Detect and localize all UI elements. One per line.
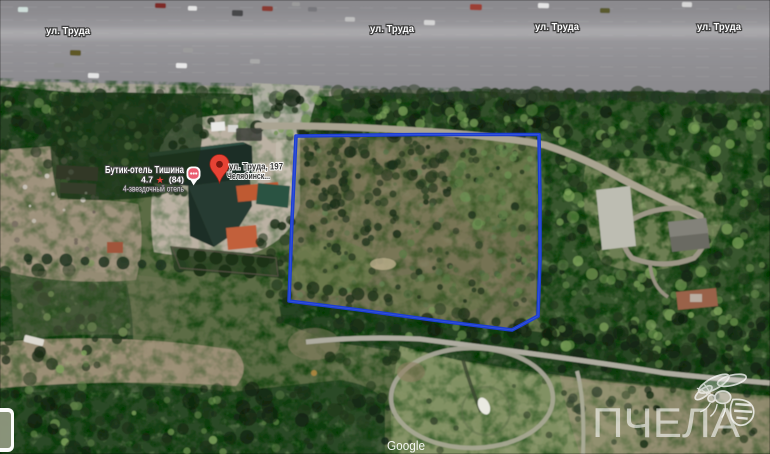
- svg-text:4-звездочный отель: 4-звездочный отель: [123, 184, 184, 194]
- svg-text:ул. Труда: ул. Труда: [535, 22, 579, 33]
- svg-text:Челябинск...: Челябинск...: [227, 171, 270, 181]
- svg-text:ул. Труда, 197: ул. Труда, 197: [229, 162, 283, 172]
- svg-text:ул. Труда: ул. Труда: [46, 26, 90, 37]
- svg-text:ул. Труда: ул. Труда: [370, 24, 414, 35]
- svg-text:ул. Труда: ул. Труда: [697, 22, 741, 33]
- svg-text:Google: Google: [387, 438, 425, 453]
- svg-text:ПЧЕЛА: ПЧЕЛА: [592, 399, 740, 446]
